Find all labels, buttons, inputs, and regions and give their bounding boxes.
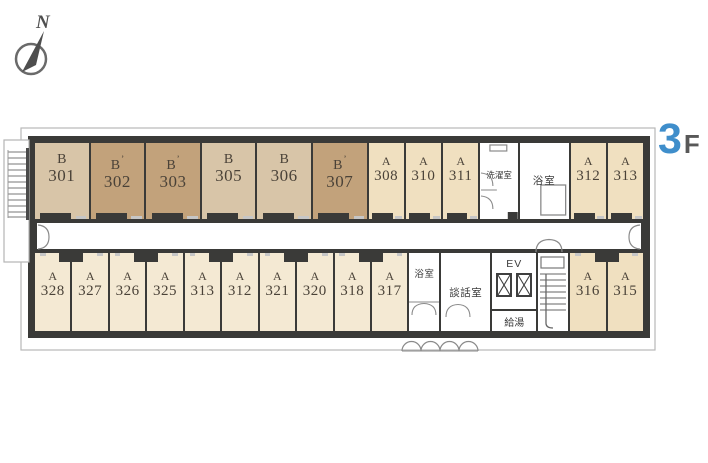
room-B-prime-302[interactable]: B’302: [89, 143, 145, 219]
room-label: A310: [411, 155, 435, 185]
room-type: A: [411, 155, 435, 168]
door-gap: [354, 216, 365, 219]
room-B-305[interactable]: B305: [200, 143, 256, 219]
floor-number: 3: [658, 118, 682, 161]
room-B-prime-307[interactable]: B’307: [311, 143, 367, 219]
room-number: 326: [116, 283, 140, 300]
room-type: A: [116, 270, 140, 283]
door-gap: [187, 216, 198, 219]
lounge-room-label: 談話室: [449, 285, 482, 300]
terrace-scallops-icon: [402, 342, 478, 352]
prime-mark: ’: [343, 154, 346, 164]
room-number: 327: [78, 283, 102, 300]
room-type: A: [613, 155, 637, 168]
room-label: A315: [613, 270, 637, 300]
door-gap: [247, 253, 253, 256]
entry-notch: [145, 253, 158, 262]
room-type: B’: [104, 152, 131, 173]
room-label: A312: [228, 270, 252, 300]
door-gap: [322, 253, 328, 256]
room-A-325[interactable]: A325: [145, 253, 182, 331]
door-gap: [115, 253, 121, 256]
room-B-301[interactable]: B301: [35, 143, 89, 219]
entry-step: [152, 213, 183, 219]
entry-step: [318, 213, 349, 219]
bath-room-bottom-label: 浴室: [414, 266, 434, 280]
room-A-311[interactable]: A311: [441, 143, 478, 219]
room-label: B305: [215, 152, 242, 185]
room-A-327[interactable]: A327: [70, 253, 107, 331]
entry-step: [96, 213, 127, 219]
room-type: A: [265, 270, 289, 283]
room-number: 315: [613, 283, 637, 300]
room-type: B: [271, 152, 298, 167]
room-label: B301: [48, 152, 75, 185]
room-type: A: [190, 270, 214, 283]
laundry-room-label: 洗濯室: [486, 169, 512, 181]
room-type: A: [576, 155, 600, 168]
entry-notch: [220, 253, 233, 262]
room-label: A317: [378, 270, 402, 300]
compass-n-label: N: [35, 12, 51, 33]
room-label: B’302: [104, 152, 131, 191]
room-label: A316: [576, 270, 600, 300]
corridor: [35, 219, 643, 253]
prime-mark: ’: [177, 154, 180, 164]
door-gap: [265, 253, 271, 256]
room-label: A313: [190, 270, 214, 300]
entry-step: [40, 213, 71, 219]
door-gap: [632, 253, 638, 256]
entry-notch: [295, 253, 308, 262]
room-A-316[interactable]: A316: [568, 253, 605, 331]
room-A-313[interactable]: A313: [183, 253, 220, 331]
room-label: A318: [340, 270, 364, 300]
door-gap: [433, 216, 440, 219]
elevator-label: EV: [506, 258, 522, 270]
room-number: 301: [48, 167, 75, 185]
room-A-318[interactable]: A318: [333, 253, 370, 331]
entry-notch: [370, 253, 383, 262]
stairwell: [536, 253, 568, 331]
room-B-306[interactable]: B306: [255, 143, 311, 219]
door-gap: [40, 253, 46, 256]
room-label: B’303: [159, 152, 186, 191]
laundry-room: 洗濯室: [478, 143, 518, 219]
bottom-room-band: A328A327A326A325A313A312A321A320A318A317…: [35, 253, 643, 331]
door-gap: [575, 253, 581, 256]
room-label: B’307: [326, 152, 353, 191]
entry-step: [263, 213, 294, 219]
door-gap: [97, 253, 103, 256]
room-label: A326: [116, 270, 140, 300]
exterior-stairs-icon: [8, 148, 28, 220]
floor-suffix: F: [684, 131, 700, 157]
entry-notch: [70, 253, 83, 262]
room-number: 305: [215, 167, 242, 185]
room-number: 303: [159, 173, 186, 191]
room-number: 312: [576, 168, 600, 185]
room-A-313[interactable]: A313: [606, 143, 643, 219]
door-gap: [298, 216, 309, 219]
elevator-cars: [496, 273, 532, 302]
compass: N: [10, 6, 62, 92]
door-gap: [172, 253, 178, 256]
hot-water-label: 給湯: [504, 314, 524, 329]
room-type: A: [378, 270, 402, 283]
room-label: A328: [41, 270, 65, 300]
floor-plan-canvas: N 3 F B301B’302B’303B305B306B’307A308A31…: [0, 0, 708, 463]
door-gap: [339, 253, 345, 256]
entry-notch: [606, 253, 619, 262]
entry-step: [372, 213, 392, 219]
door-gap: [395, 216, 402, 219]
door-gap: [131, 216, 142, 219]
room-A-320[interactable]: A320: [295, 253, 332, 331]
room-number: 325: [153, 283, 177, 300]
bath-room-top: 浴室: [518, 143, 569, 219]
room-number: 321: [265, 283, 289, 300]
stair-landing-outline: [4, 140, 29, 262]
room-number: 307: [326, 173, 353, 191]
entry-step: [574, 213, 594, 219]
room-type: A: [340, 270, 364, 283]
bath-room-bottom: 浴室: [407, 253, 439, 331]
room-type: B’: [326, 152, 353, 173]
room-A-312[interactable]: A312: [220, 253, 257, 331]
elevator-car-icon: [496, 273, 512, 302]
room-A-317[interactable]: A317: [370, 253, 407, 331]
room-number: 308: [374, 168, 398, 185]
room-label: A321: [265, 270, 289, 300]
door-gap: [470, 216, 477, 219]
room-label: A325: [153, 270, 177, 300]
laundry-fixtures-icon: [480, 143, 518, 219]
building: B301B’302B’303B305B306B’307A308A310A311洗…: [28, 136, 650, 338]
room-number: 312: [228, 283, 252, 300]
room-number: 302: [104, 173, 131, 191]
stairs-icon: [538, 253, 568, 331]
room-number: 320: [303, 283, 327, 300]
room-label: B306: [271, 152, 298, 185]
room-type: A: [41, 270, 65, 283]
door-gap: [397, 253, 403, 256]
bath-door-arcs-icon: [409, 253, 439, 331]
entry-step: [207, 213, 238, 219]
elevator-car-icon: [516, 273, 532, 302]
entry-step: [611, 213, 631, 219]
room-label: A313: [613, 155, 637, 185]
room-number: 318: [340, 283, 364, 300]
room-type: B: [48, 152, 75, 167]
room-number: 310: [411, 168, 435, 185]
room-number: 313: [190, 283, 214, 300]
room-label: A327: [78, 270, 102, 300]
prime-mark: ’: [121, 154, 124, 164]
hot-water-room: 給湯: [492, 309, 536, 331]
entry-step: [447, 213, 467, 219]
room-label: A312: [576, 155, 600, 185]
room-type: A: [576, 270, 600, 283]
room-number: 317: [378, 283, 402, 300]
room-number: 313: [613, 168, 637, 185]
entry-step: [409, 213, 429, 219]
floor-label: 3 F: [658, 118, 700, 161]
room-type: B: [215, 152, 242, 167]
room-number: 328: [41, 283, 65, 300]
bath-room-top-label: 浴室: [533, 173, 556, 188]
room-type: A: [613, 270, 637, 283]
room-type: A: [303, 270, 327, 283]
door-gap: [190, 253, 196, 256]
lounge-room: 談話室: [439, 253, 490, 331]
room-type: A: [449, 155, 472, 168]
room-number: 306: [271, 167, 298, 185]
door-gap: [76, 216, 87, 219]
room-type: B’: [159, 152, 186, 173]
room-label: A308: [374, 155, 398, 185]
room-label: A311: [449, 155, 472, 185]
door-gap: [635, 216, 642, 219]
room-number: 316: [576, 283, 600, 300]
room-A-326[interactable]: A326: [108, 253, 145, 331]
room-type: A: [228, 270, 252, 283]
room-type: A: [78, 270, 102, 283]
room-A-315[interactable]: A315: [606, 253, 643, 331]
door-gap: [597, 216, 604, 219]
room-type: A: [374, 155, 398, 168]
door-gap: [243, 216, 254, 219]
room-A-328[interactable]: A328: [35, 253, 70, 331]
room-label: A320: [303, 270, 327, 300]
elevator-block: EV給湯: [490, 253, 536, 331]
room-A-310[interactable]: A310: [404, 143, 441, 219]
room-A-308[interactable]: A308: [367, 143, 404, 219]
compass-needle-icon: [22, 31, 44, 72]
top-room-band: B301B’302B’303B305B306B’307A308A310A311洗…: [35, 143, 643, 219]
room-B-prime-303[interactable]: B’303: [144, 143, 200, 219]
room-number: 311: [449, 168, 472, 185]
room-A-321[interactable]: A321: [258, 253, 295, 331]
room-type: A: [153, 270, 177, 283]
room-A-312[interactable]: A312: [569, 143, 606, 219]
